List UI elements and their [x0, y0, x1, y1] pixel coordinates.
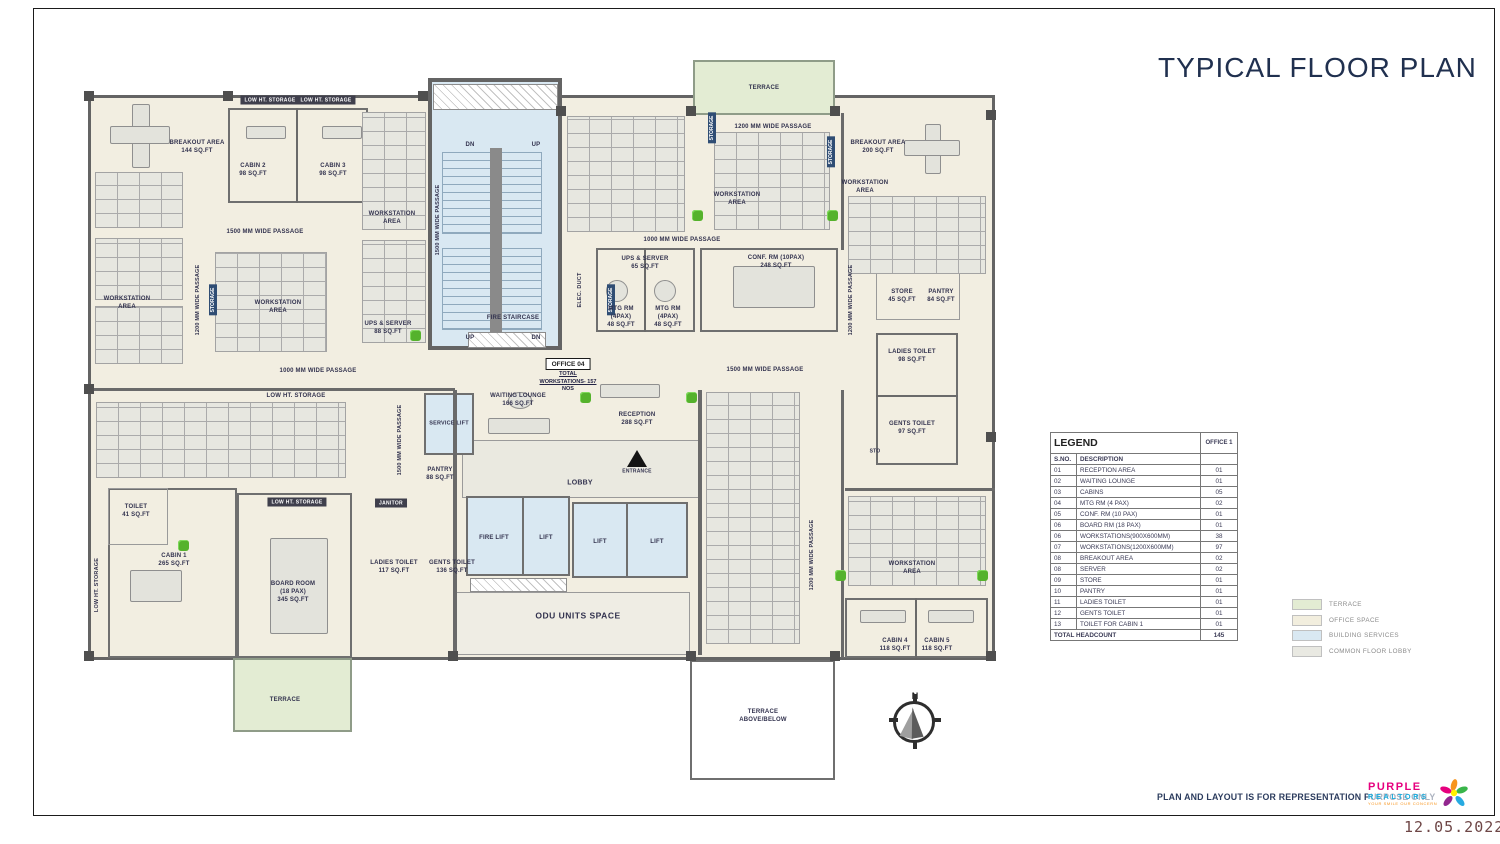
cabins-2-3 — [228, 108, 368, 203]
ups-server-88-label: UPS & SERVER 88 SQ.FT — [365, 320, 412, 336]
compass-tick — [932, 718, 941, 722]
breakout-200-label: BREAKOUT AREA 200 SQ.FT — [850, 139, 905, 155]
gents-toilet-136-label: GENTS TOILET 136 SQ.FT — [429, 559, 475, 575]
passage-1200-label: 1200 MM WIDE PASSAGE — [735, 123, 812, 131]
odu-units-space — [455, 592, 690, 655]
workstation-area-label: WORKSTATION AREA — [889, 560, 936, 576]
passage-1000-label: 1000 MM WIDE PASSAGE — [644, 236, 721, 244]
stair-up-label: UP — [532, 141, 541, 149]
legend-row: 06WORKSTATIONS(900X600MM)38 — [1051, 531, 1238, 542]
common-floor-lobby-swatch — [1292, 646, 1322, 657]
terrace-label: TERRACE — [749, 84, 779, 92]
terrace-above-label: TERRACE ABOVE/BELOW — [739, 708, 787, 724]
desk-cluster — [848, 196, 986, 274]
cabin4-label: CABIN 4 118 SQ.FT — [880, 637, 911, 653]
mtg-room-label: MTG RM (4PAX) 48 SQ.FT — [607, 305, 635, 329]
gents-toilet-97-label: GENTS TOILET 97 SQ.FT — [889, 420, 935, 436]
desk-cluster — [706, 392, 800, 644]
column — [448, 651, 458, 661]
plant-icon — [410, 330, 421, 341]
plant-icon — [686, 392, 697, 403]
cabin1-label: CABIN 1 265 SQ.FT — [158, 552, 189, 568]
color-legend: TERRACE OFFICE SPACE BUILDING SERVICES C… — [1292, 597, 1452, 659]
low-ht-storage-label: LOW HT. STORAGE — [267, 392, 326, 400]
logo-name2: REALTORS — [1368, 793, 1437, 801]
wall-segment — [88, 388, 455, 391]
legend-row: 13TOILET FOR CABIN 101 — [1051, 619, 1238, 630]
board-room-label: BOARD ROOM (18 PAX) 345 SQ.FT — [271, 580, 315, 604]
legend-row: 06BOARD RM (18 PAX)01 — [1051, 520, 1238, 531]
legend-row: 05CONF. RM (10 PAX)01 — [1051, 509, 1238, 520]
compass-tick — [913, 694, 917, 703]
toilet-41-label: TOILET 41 SQ.FT — [122, 503, 150, 519]
legend-total-row: TOTAL HEADCOUNT 145 — [1051, 630, 1238, 641]
wall-segment — [698, 390, 702, 655]
legend-total-value: 145 — [1201, 630, 1238, 641]
column — [418, 91, 428, 101]
desk-cluster — [96, 402, 346, 478]
column — [830, 651, 840, 661]
column — [830, 106, 840, 116]
office-04-note: TOTAL WORKSTATIONS- 157 NOS — [540, 371, 597, 394]
wall-segment — [453, 390, 457, 660]
entrance-label: ENTRANCE — [622, 469, 651, 476]
store-45-label: STORE 45 SQ.FT — [888, 288, 916, 304]
column — [686, 106, 696, 116]
legend-table: LEGEND OFFICE 1 S.NO. DESCRIPTION 01RECE… — [1050, 432, 1238, 641]
lounge-sofa — [488, 418, 550, 434]
legend-row: 01RECEPTION AREA01 — [1051, 465, 1238, 476]
wall-segment — [876, 395, 958, 397]
legend-row: 03CABINS05 — [1051, 487, 1238, 498]
plant-icon — [977, 570, 988, 581]
passage-1200-vertical: 1200 MM WIDE PASSAGE — [809, 520, 815, 591]
lobby-area — [462, 440, 700, 498]
column — [84, 91, 94, 101]
pantry-88-label: PANTRY 88 SQ.FT — [426, 466, 454, 482]
terrace-label: TERRACE — [270, 696, 300, 704]
entrance-marker — [627, 450, 647, 467]
building-services-swatch — [1292, 630, 1322, 641]
column — [84, 651, 94, 661]
passage-1500-vertical: 1500 MM WIDE PASSAGE — [435, 185, 441, 256]
cabin-desk — [246, 126, 286, 139]
passage-1500-label: 1500 MM WIDE PASSAGE — [227, 228, 304, 236]
desk-cluster — [95, 306, 183, 364]
revision-date: 12.05.2022 — [1404, 818, 1500, 836]
workstation-area-label: WORKSTATION AREA — [369, 210, 416, 226]
legend-row: 09STORE01 — [1051, 575, 1238, 586]
column — [223, 91, 233, 101]
logo-tagline: YOUR SMILE OUR CONCERN — [1368, 802, 1437, 806]
passage-1200-vertical: 1200 MM WIDE PASSAGE — [195, 265, 201, 336]
reception-desk — [600, 384, 660, 398]
lift-label: LIFT — [593, 538, 606, 546]
low-ht-storage-strip: LOW HT. STORAGE — [240, 96, 299, 105]
cabin5-label: CABIN 5 118 SQ.FT — [922, 637, 953, 653]
legend-row: 08BREAKOUT AREA02 — [1051, 553, 1238, 564]
passage-1500-vertical: 1500 MM WIDE PASSAGE — [397, 405, 403, 476]
wall-segment — [841, 390, 844, 658]
legend-row: 07WORKSTATIONS(1200X600MM)97 — [1051, 542, 1238, 553]
storage-vertical-strip: STORAGE — [708, 113, 716, 144]
color-legend-item: BUILDING SERVICES — [1292, 628, 1452, 644]
meeting-table — [654, 280, 676, 302]
cabin-desk — [130, 570, 182, 602]
cabin-desk — [928, 610, 974, 623]
color-legend-item: TERRACE — [1292, 597, 1452, 613]
desk-cluster — [95, 238, 183, 300]
stair-up-label: UP — [466, 334, 475, 342]
low-ht-storage-vertical: LOW HT. STORAGE — [94, 558, 100, 612]
sto-label: STO — [870, 449, 881, 456]
cabin-desk — [322, 126, 362, 139]
shaft-hatch — [433, 84, 558, 110]
plant-icon — [692, 210, 703, 221]
low-ht-storage-strip: LOW HT. STORAGE — [267, 498, 326, 507]
passage-1500-label: 1500 MM WIDE PASSAGE — [727, 366, 804, 374]
workstation-area-label: WORKSTATION AREA — [714, 191, 761, 207]
legend-row: 08SERVER02 — [1051, 564, 1238, 575]
stair-dn-label: DN — [531, 334, 540, 342]
office-04-tag: OFFICE 04 — [546, 358, 591, 370]
low-ht-storage-strip: LOW HT. STORAGE — [296, 96, 355, 105]
column — [84, 384, 94, 394]
workstation-area-label: WORKSTATION AREA — [255, 299, 302, 315]
shaft-hatch — [470, 578, 567, 592]
elec-duct-label: ELEC. DUCT — [577, 273, 583, 308]
column — [986, 651, 996, 661]
column — [986, 432, 996, 442]
desk-cluster — [567, 116, 685, 232]
wall-segment — [915, 598, 917, 658]
cabin-desk — [860, 610, 906, 623]
logo-wordmark: PURPLE REALTORS YOUR SMILE OUR CONCERN — [1368, 782, 1437, 806]
storage-vertical-strip: STORAGE — [827, 137, 835, 168]
conference-room-label: CONF. RM (10PAX) 248 SQ.FT — [748, 254, 804, 270]
breakout-desk — [904, 140, 960, 156]
service-lift-label: SERVICE LIFT — [429, 420, 469, 427]
plant-icon — [835, 570, 846, 581]
stair-dn-label: DN — [465, 141, 474, 149]
legend-row: 10PANTRY01 — [1051, 586, 1238, 597]
lift-label: LIFT — [539, 534, 552, 542]
ladies-toilet-98-label: LADIES TOILET 98 SQ.FT — [888, 348, 936, 364]
legend-sno-header: S.NO. — [1051, 454, 1077, 465]
column — [986, 110, 996, 120]
workstation-area-label: WORKSTATION AREA — [842, 179, 889, 195]
passage-1200-vertical: 1200 MM WIDE PASSAGE — [848, 265, 854, 336]
compass-tick — [889, 718, 898, 722]
conference-table — [733, 266, 815, 308]
legend-desc-header: DESCRIPTION — [1077, 454, 1201, 465]
ladies-toilet-117-label: LADIES TOILET 117 SQ.FT — [370, 559, 418, 575]
reception-label: RECEPTION 288 SQ.FT — [619, 411, 656, 427]
pantry-84-label: PANTRY 84 SQ.FT — [927, 288, 955, 304]
north-compass: N — [888, 692, 942, 748]
breakout-desk — [110, 126, 170, 144]
cabin2-label: CABIN 2 98 SQ.FT — [239, 162, 267, 178]
mtg-room-label: MTG RM (4PAX) 48 SQ.FT — [654, 305, 682, 329]
breakout-144-label: BREAKOUT AREA 144 SQ.FT — [169, 139, 224, 155]
cabin3-label: CABIN 3 98 SQ.FT — [319, 162, 347, 178]
column — [556, 106, 566, 116]
lobby-label: LOBBY — [567, 478, 593, 487]
column — [686, 651, 696, 661]
legend-office-header: OFFICE 1 — [1201, 433, 1238, 454]
legend-row: 04MTG RM (4 PAX)02 — [1051, 498, 1238, 509]
stair-landing — [490, 148, 502, 334]
legend-row: 12GENTS TOILET01 — [1051, 608, 1238, 619]
storage-vertical-strip: STORAGE — [209, 285, 217, 316]
lift-label: LIFT — [650, 538, 663, 546]
terrace-swatch — [1292, 599, 1322, 610]
color-legend-item: COMMON FLOOR LOBBY — [1292, 644, 1452, 660]
legend-title: LEGEND — [1051, 433, 1201, 454]
legend-row: 11LADIES TOILET01 — [1051, 597, 1238, 608]
legend-row: 02WAITING LOUNGE01 — [1051, 476, 1238, 487]
plant-icon — [827, 210, 838, 221]
janitor-strip: JANITOR — [375, 499, 407, 508]
color-legend-item: OFFICE SPACE — [1292, 613, 1452, 629]
compass-tick — [913, 740, 917, 749]
floor-plan: TERRACE TERRACE TERRACE ABOVE/BELOW BREA… — [0, 0, 1500, 844]
workstation-area-label: WORKSTATION AREA — [104, 295, 151, 311]
passage-1000-label: 1000 MM WIDE PASSAGE — [280, 367, 357, 375]
office-space-swatch — [1292, 615, 1322, 626]
waiting-lounge-label: WAITING LOUNGE 166 SQ.FT — [490, 392, 546, 408]
odu-label: ODU UNITS SPACE — [535, 610, 620, 621]
desk-cluster — [95, 172, 183, 228]
purple-realtors-logo: PURPLE REALTORS YOUR SMILE OUR CONCERN — [1368, 779, 1469, 809]
legend-total-label: TOTAL HEADCOUNT — [1051, 630, 1201, 641]
desk-cluster — [714, 132, 830, 230]
logo-star-icon — [1439, 779, 1469, 809]
wall-segment — [845, 488, 995, 491]
fire-staircase-label: FIRE STAIRCASE — [487, 314, 539, 322]
fire-lift-label: FIRE LIFT — [479, 534, 509, 542]
plant-icon — [178, 540, 189, 551]
wall-segment — [296, 108, 298, 203]
ups-server-65-label: UPS & SERVER 65 SQ.FT — [622, 255, 669, 271]
